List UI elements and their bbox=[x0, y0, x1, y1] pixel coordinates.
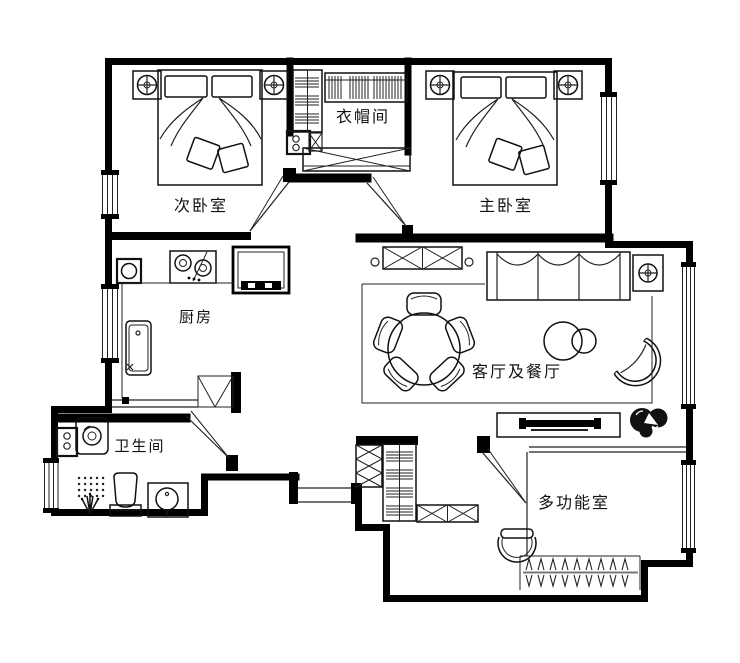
clothes-rail-icon bbox=[520, 556, 640, 590]
room-master-bedroom: 主卧室 bbox=[426, 71, 582, 215]
floor-plan-canvas: 次卧室 衣帽间 bbox=[0, 0, 740, 663]
double-bed-icon bbox=[158, 70, 262, 185]
window-mfr-right bbox=[681, 460, 696, 553]
room-label-bathroom: 卫生间 bbox=[114, 437, 165, 455]
area-outline bbox=[362, 284, 652, 403]
window-bedroom-left bbox=[101, 170, 119, 219]
room-bathroom: 卫生间 bbox=[57, 418, 188, 517]
desk-chair-icon bbox=[498, 529, 536, 562]
wardrobe-hanging-icon bbox=[383, 444, 416, 521]
room-label-multi-function: 多功能室 bbox=[538, 493, 610, 512]
room-label-secondary-bedroom: 次卧室 bbox=[174, 196, 228, 215]
wardrobe-shelves-icon bbox=[356, 445, 382, 487]
room-label-cloakroom: 衣帽间 bbox=[336, 107, 390, 126]
storage-cabinet-icon bbox=[371, 247, 473, 269]
ceiling-lamp-icon bbox=[260, 71, 288, 99]
room-living-dining: 客厅及餐厅 bbox=[362, 247, 671, 438]
window-living-right bbox=[681, 262, 696, 409]
room-secondary-bedroom: 次卧室 bbox=[133, 70, 288, 215]
room-kitchen: 厨房 bbox=[117, 247, 289, 398]
kitchen-sink-icon bbox=[126, 321, 151, 375]
room-label-kitchen: 厨房 bbox=[179, 308, 213, 326]
gas-stove-icon bbox=[170, 251, 216, 283]
clothes-rail-icon bbox=[325, 73, 407, 102]
refrigerator-icon bbox=[233, 247, 289, 293]
door-bathroom bbox=[186, 411, 229, 458]
double-bed-icon bbox=[453, 72, 557, 185]
side-table-lamp-icon bbox=[633, 255, 663, 291]
dresser-icon bbox=[303, 148, 410, 171]
exterior-walls bbox=[55, 62, 690, 599]
windows bbox=[43, 92, 696, 553]
room-multi-function: 多功能室 bbox=[356, 436, 640, 590]
tv-icon bbox=[519, 418, 601, 430]
utility-cabinet-icon bbox=[57, 428, 77, 456]
window-kitchen-left bbox=[101, 284, 119, 363]
dining-chair-icon bbox=[427, 354, 467, 393]
flue-vent-icon bbox=[117, 259, 141, 283]
room-label-living-dining: 客厅及餐厅 bbox=[472, 362, 562, 381]
sofa-icon bbox=[487, 252, 630, 300]
shelf-cabinet-icon bbox=[293, 70, 322, 132]
dining-table-icon bbox=[388, 313, 460, 385]
counter-edge bbox=[122, 283, 233, 398]
low-cabinet-icon bbox=[417, 505, 478, 522]
room-cloakroom: 衣帽间 bbox=[287, 70, 410, 171]
floor-plan: 次卧室 衣帽间 bbox=[0, 0, 740, 663]
ceiling-lamp-icon bbox=[426, 71, 454, 99]
door-multi-function-room bbox=[482, 449, 527, 556]
dining-chair-icon bbox=[407, 293, 441, 315]
room-label-master-bedroom: 主卧室 bbox=[479, 196, 533, 215]
ceiling-lamp-icon bbox=[133, 71, 161, 99]
dining-chair-icon bbox=[381, 354, 421, 393]
coffee-table-icon bbox=[544, 322, 596, 360]
toilet-icon bbox=[110, 473, 141, 516]
door-master-bedroom bbox=[367, 177, 406, 226]
plant-icon bbox=[630, 408, 668, 438]
armchair-icon bbox=[614, 337, 671, 396]
window-master-right bbox=[600, 92, 617, 185]
ceiling-lamp-icon bbox=[554, 71, 582, 99]
door-kitchen-folding bbox=[198, 376, 233, 407]
shower-spray-icon bbox=[79, 478, 103, 496]
washing-machine-icon bbox=[76, 418, 108, 454]
window-bathroom-left bbox=[43, 458, 59, 513]
